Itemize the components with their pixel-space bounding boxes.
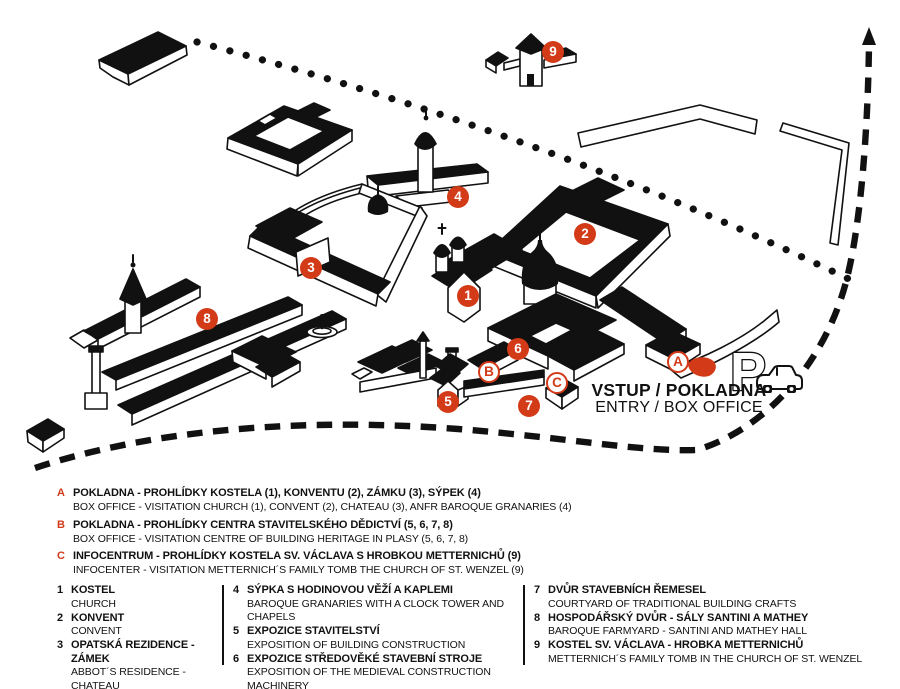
service-czech-label: POKLADNA - PROHLÍDKY CENTRA STAVITELSKÉH…	[73, 518, 572, 532]
building-text: SÝPKA S HODINOVOU VĚŽÍ A KAPLEMIBAROQUE …	[247, 584, 521, 625]
building-text: EXPOZICE STAVITELSTVÍEXPOSITION OF BUILD…	[247, 625, 521, 652]
building-english-label: BAROQUE FARMYARD - SANTINI AND MATHEY HA…	[548, 625, 894, 639]
building-czech-label: KONVENT	[71, 612, 221, 626]
building-text: KONVENTCONVENT	[71, 612, 221, 639]
legend-buildings-column-3: 7DVŮR STAVEBNÍCH ŘEMESELCOURTYARD OF TRA…	[534, 584, 894, 667]
building-czech-label: DVŮR STAVEBNÍCH ŘEMESEL	[548, 584, 894, 598]
building-number: 8	[534, 612, 548, 639]
north-courtyard-complex	[227, 103, 352, 176]
legend-services: APOKLADNA - PROHLÍDKY KOSTELA (1), KONVE…	[57, 486, 572, 581]
building-8-farmyard	[70, 255, 346, 425]
building-2-convent	[488, 178, 670, 308]
building-number: 7	[534, 584, 548, 611]
entry-label-czech: VSTUP / POKLADNA	[592, 380, 767, 401]
building-6-south-wing	[488, 294, 624, 381]
building-english-label: COURTYARD OF TRADITIONAL BUILDING CRAFTS	[548, 598, 894, 612]
building-english-label: CONVENT	[71, 625, 221, 639]
building-english-label: EXPOSITION OF BUILDING CONSTRUCTION	[247, 639, 521, 653]
building-english-label: BAROQUE GRANARIES WITH A CLOCK TOWER AND…	[247, 598, 521, 625]
building-english-label: METTERNICH´S FAMILY TOMB IN THE CHURCH O…	[548, 653, 894, 667]
service-czech-label: POKLADNA - PROHLÍDKY KOSTELA (1), KONVEN…	[73, 486, 572, 500]
building-row-6: 6EXPOZICE STŘEDOVĚKÉ STAVEBNÍ STROJEEXPO…	[233, 653, 521, 689]
building-text: DVŮR STAVEBNÍCH ŘEMESELCOURTYARD OF TRAD…	[548, 584, 894, 611]
service-row-B: BPOKLADNA - PROHLÍDKY CENTRA STAVITELSKÉ…	[57, 518, 572, 546]
service-letter-B: B	[57, 518, 73, 546]
building-3-chateau	[248, 184, 427, 306]
service-czech-label: INFOCENTRUM - PROHLÍDKY KOSTELA SV. VÁCL…	[73, 549, 572, 563]
barn-northwest	[99, 32, 187, 85]
building-row-9: 9KOSTEL SV. VÁCLAVA - HROBKA METTERNICHŮ…	[534, 639, 894, 666]
legend-divider-2	[523, 585, 525, 665]
service-letter-C: C	[57, 549, 73, 577]
building-number: 2	[57, 612, 71, 639]
legend-buildings-column-2: 4SÝPKA S HODINOVOU VĚŽÍ A KAPLEMIBAROQUE…	[233, 584, 521, 689]
site-map-page: P 123456789ABC VSTUP / POKLADNA ENTRY / …	[0, 0, 900, 689]
building-text: KOSTELCHURCH	[71, 584, 221, 611]
legend-buildings-column-1: 1KOSTELCHURCH2KONVENTCONVENT3OPATSKÁ REZ…	[57, 584, 221, 689]
building-number: 5	[233, 625, 247, 652]
service-text: POKLADNA - PROHLÍDKY KOSTELA (1), KONVEN…	[73, 486, 572, 514]
barn-southwest	[27, 419, 64, 452]
building-text: EXPOZICE STŘEDOVĚKÉ STAVEBNÍ STROJEEXPOS…	[247, 653, 521, 689]
building-czech-label: HOSPODÁŘSKÝ DVŮR - SÁLY SANTINI A MATHEY	[548, 612, 894, 626]
service-english-label: INFOCENTER - VISITATION METTERNICH´S FAM…	[73, 563, 572, 577]
service-text: INFOCENTRUM - PROHLÍDKY KOSTELA SV. VÁCL…	[73, 549, 572, 577]
building-row-2: 2KONVENTCONVENT	[57, 612, 221, 639]
service-row-A: APOKLADNA - PROHLÍDKY KOSTELA (1), KONVE…	[57, 486, 572, 514]
building-czech-label: SÝPKA S HODINOVOU VĚŽÍ A KAPLEMI	[247, 584, 521, 598]
building-text: KOSTEL SV. VÁCLAVA - HROBKA METTERNICHŮM…	[548, 639, 894, 666]
legend-divider-1	[222, 585, 224, 665]
service-english-label: BOX OFFICE - VISITATION CENTRE OF BUILDI…	[73, 532, 572, 546]
building-number: 9	[534, 639, 548, 666]
service-english-label: BOX OFFICE - VISITATION CHURCH (1), CONV…	[73, 500, 572, 514]
building-english-label: CHURCH	[71, 598, 221, 612]
building-text: HOSPODÁŘSKÝ DVŮR - SÁLY SANTINI A MATHEY…	[548, 612, 894, 639]
building-row-7: 7DVŮR STAVEBNÍCH ŘEMESELCOURTYARD OF TRA…	[534, 584, 894, 611]
building-czech-label: OPATSKÁ REZIDENCE - ZÁMEK	[71, 639, 221, 666]
building-number: 6	[233, 653, 247, 689]
building-english-label: ABBOT´S RESIDENCE - CHATEAU	[71, 666, 221, 689]
service-text: POKLADNA - PROHLÍDKY CENTRA STAVITELSKÉH…	[73, 518, 572, 546]
service-letter-A: A	[57, 486, 73, 514]
building-row-5: 5EXPOZICE STAVITELSTVÍEXPOSITION OF BUIL…	[233, 625, 521, 652]
building-number: 4	[233, 584, 247, 625]
building-row-8: 8HOSPODÁŘSKÝ DVŮR - SÁLY SANTINI A MATHE…	[534, 612, 894, 639]
building-row-3: 3OPATSKÁ REZIDENCE - ZÁMEKABBOT´S RESIDE…	[57, 639, 221, 689]
monastery-site-map: P	[0, 0, 900, 480]
building-english-label: EXPOSITION OF THE MEDIEVAL CONSTRUCTION …	[247, 666, 521, 689]
building-czech-label: KOSTEL	[71, 584, 221, 598]
entry-label-english: ENTRY / BOX OFFICE	[595, 399, 762, 417]
building-row-4: 4SÝPKA S HODINOVOU VĚŽÍ A KAPLEMIBAROQUE…	[233, 584, 521, 625]
arrow-up-icon	[862, 27, 876, 45]
building-czech-label: KOSTEL SV. VÁCLAVA - HROBKA METTERNICHŮ	[548, 639, 894, 653]
building-czech-label: EXPOZICE STAVITELSTVÍ	[247, 625, 521, 639]
building-number: 1	[57, 584, 71, 611]
building-number: 3	[57, 639, 71, 689]
building-row-1: 1KOSTELCHURCH	[57, 584, 221, 611]
building-text: OPATSKÁ REZIDENCE - ZÁMEKABBOT´S RESIDEN…	[71, 639, 221, 689]
service-row-C: CINFOCENTRUM - PROHLÍDKY KOSTELA SV. VÁC…	[57, 549, 572, 577]
building-czech-label: EXPOZICE STŘEDOVĚKÉ STAVEBNÍ STROJE	[247, 653, 521, 667]
building-9-church-st-wenzel	[486, 34, 576, 86]
